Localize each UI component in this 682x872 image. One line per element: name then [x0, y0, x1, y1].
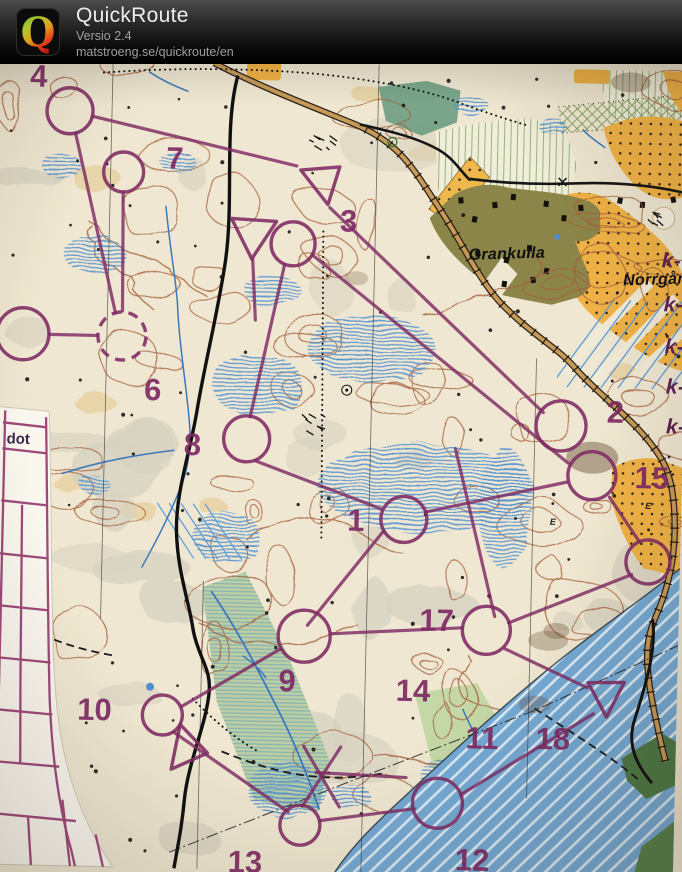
map-symbol-letter: E	[550, 517, 557, 527]
control-number: 18	[535, 721, 570, 757]
edge-label-k: k-	[666, 415, 682, 438]
sheet-label: dot	[6, 430, 30, 448]
quickroute-logo-art: Q	[16, 8, 60, 56]
edge-label-k: k-	[666, 375, 682, 398]
app-header: Q QuickRoute Versio 2.4 matstroeng.se/qu…	[0, 0, 682, 64]
orienteering-map: dot GrankullaNorrgårk-k-k-k-k-EE 4736821…	[0, 64, 682, 872]
control-number: 15	[634, 460, 669, 496]
app-title: QuickRoute	[76, 4, 234, 28]
quickroute-logo: Q	[16, 8, 60, 56]
control-number: 6	[144, 372, 162, 407]
logo-letter: Q	[21, 9, 56, 56]
control-number: 14	[395, 673, 431, 709]
control-number: 13	[227, 844, 262, 872]
app-url: matstroeng.se/quickroute/en	[76, 44, 234, 60]
place-label: Grankulla	[468, 245, 545, 264]
control-number: 7	[166, 140, 184, 175]
control-number: 2	[606, 395, 624, 430]
control-number: 9	[278, 663, 296, 698]
edge-label-k: k-	[665, 335, 682, 358]
control-number: 12	[455, 842, 490, 872]
control-number: 3	[340, 203, 358, 238]
course-leg	[49, 334, 97, 335]
control-number: 1	[347, 503, 365, 538]
control-number: 4	[30, 64, 49, 94]
control-number: 10	[77, 692, 112, 728]
app-version: Versio 2.4	[76, 28, 234, 44]
map-symbol-letter: E	[645, 501, 652, 511]
control-number: 8	[183, 427, 201, 462]
control-number: 11	[465, 720, 499, 756]
edge-label-k: k-	[662, 249, 682, 272]
edge-label-k: k-	[664, 293, 682, 316]
map-canvas[interactable]: dot GrankullaNorrgårk-k-k-k-k-EE 4736821…	[0, 64, 682, 872]
place-label: Norrgår	[623, 270, 682, 290]
control-number: 17	[419, 602, 454, 638]
